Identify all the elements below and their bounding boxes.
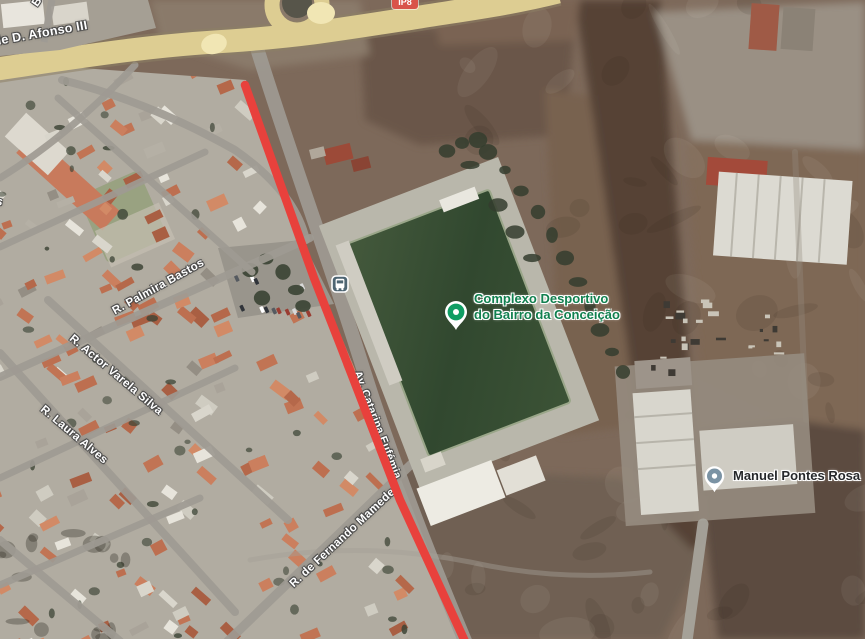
bus-stop-icon[interactable] xyxy=(328,272,352,296)
poi-label-complexo-desportivo[interactable]: Complexo Desportivo do Bairro da Conceiç… xyxy=(474,291,620,323)
poi-label-manuel-pontes-rosa[interactable]: Manuel Pontes Rosa xyxy=(733,468,860,484)
poi-label-line1: Manuel Pontes Rosa xyxy=(733,468,860,484)
sports-complex-pin-icon[interactable] xyxy=(441,296,471,334)
map-canvas[interactable]: R. de D. Afonso III B s R. Palmira Basto… xyxy=(0,0,865,639)
poi-label-line2: do Bairro da Conceição xyxy=(474,307,620,323)
satellite-imagery xyxy=(0,0,865,639)
poi-label-line1: Complexo Desportivo xyxy=(474,291,620,307)
place-pin-icon[interactable] xyxy=(701,462,728,496)
